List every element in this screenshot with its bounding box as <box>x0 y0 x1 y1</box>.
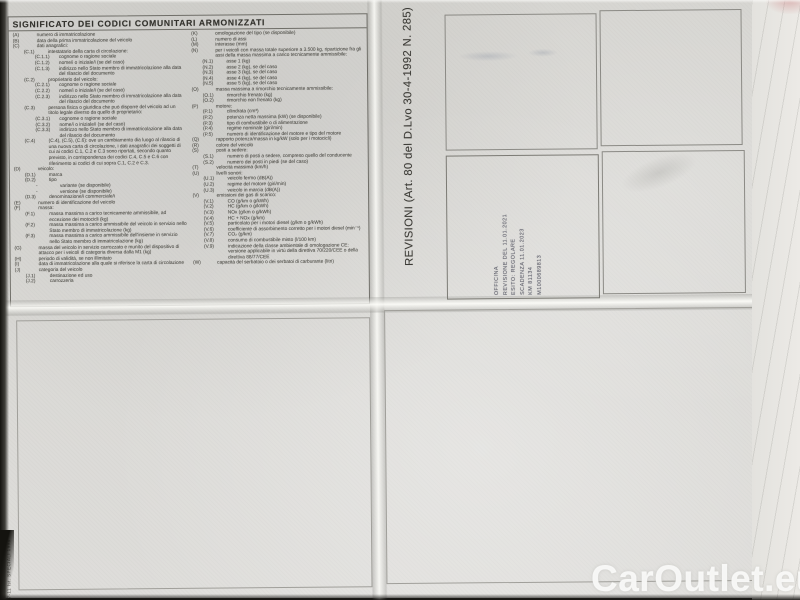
code-label: (F.1) <box>25 212 49 223</box>
code-label: (G) <box>15 246 39 257</box>
code-label: (V.9) <box>204 244 228 261</box>
scanned-document: SIGNIFICATO DEI CODICI COMUNITARI ARMONI… <box>0 0 800 600</box>
watermark: CarOutlet.eu <box>591 558 800 600</box>
code-label: (C.2.3) <box>35 94 59 105</box>
faint-stamp-smudge <box>528 49 558 57</box>
revisions-label: REVISIONI (Art. 80 del D.Lvo 30-4-1992 N… <box>402 42 420 266</box>
scanner-edge-top <box>0 0 800 3</box>
revision-stamp: OFFICINAREVISIONE DEL 11.01.2021ESITO: R… <box>492 155 553 296</box>
legend-entry: (C.4)(C.4), (C.5), (C.6): ove un cambiam… <box>14 138 187 167</box>
code-label: (C.4) <box>25 139 49 167</box>
revision-box-top-left <box>445 13 598 150</box>
legend-block: SIGNIFICATO DEI CODICI COMUNITARI ARMONI… <box>8 13 371 307</box>
legend-entry: (J.2)carrozzeria <box>15 278 188 285</box>
code-label: (N) <box>191 48 215 59</box>
panel-bottom-right <box>384 307 762 584</box>
panel-bottom-left <box>16 317 372 590</box>
code-label: (F.3) <box>25 234 49 245</box>
codes-right-column: (K)omologazione del tipo (se disponibile… <box>191 30 366 283</box>
codes-left-column: (A)numero di immatricolazione(B)data del… <box>13 32 188 285</box>
page-right-edge <box>752 0 800 600</box>
faint-stamp-smudge <box>458 51 518 62</box>
scanner-edge-left <box>0 0 9 600</box>
legend-columns: (A)numero di immatricolazione(B)data del… <box>9 28 369 285</box>
code-label: (F.2) <box>25 223 49 234</box>
paper-content: SIGNIFICATO DEI CODICI COMUNITARI ARMONI… <box>0 0 800 600</box>
revision-box-top-right <box>599 9 742 146</box>
legend-entry: (W)capacità del serbatoio o dei serbatoi… <box>193 260 366 267</box>
code-label: (W) <box>193 261 217 267</box>
code-text: indicazione della classe ambientale di o… <box>228 243 366 261</box>
scanner-edge-corner <box>0 530 14 600</box>
code-text: carrozzeria <box>50 278 188 285</box>
stamp-line: M1000689813 <box>535 155 545 295</box>
code-text: capacità del serbatoio o dei serbatoi di… <box>217 260 366 267</box>
code-label: (C.3.3) <box>35 128 59 139</box>
legend-entry: (V.9)indicazione della classe ambientale… <box>193 243 366 261</box>
code-text: (C.4), (C.5), (C.6): ove un cambiamento … <box>49 138 187 167</box>
code-label: (C.3) <box>24 106 48 117</box>
code-label: (C.1.3) <box>35 67 59 78</box>
code-label: (J.2) <box>26 279 50 285</box>
